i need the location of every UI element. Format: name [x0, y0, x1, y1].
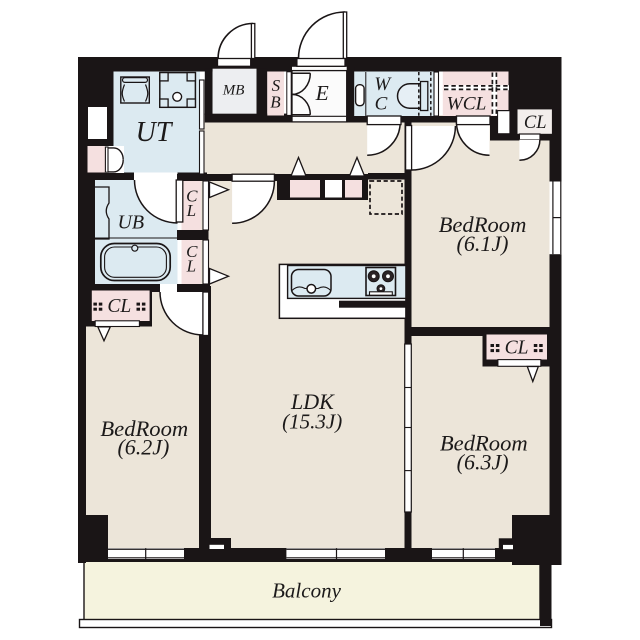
svg-text:(15.3J): (15.3J): [282, 410, 342, 434]
svg-text:MB: MB: [222, 82, 245, 98]
svg-text:UB: UB: [117, 212, 144, 234]
svg-text:CL: CL: [505, 338, 529, 359]
svg-text:UT: UT: [136, 117, 174, 148]
svg-text:(6.3J): (6.3J): [457, 450, 509, 475]
svg-text:Balcony: Balcony: [272, 578, 341, 602]
svg-text:E: E: [315, 81, 329, 105]
svg-text:(6.2J): (6.2J): [117, 435, 169, 460]
svg-text:CL: CL: [524, 113, 547, 133]
svg-text:WCL: WCL: [447, 94, 487, 115]
svg-text:W: W: [374, 74, 392, 95]
svg-text:C: C: [375, 94, 388, 115]
svg-text:(6.1J): (6.1J): [457, 231, 509, 256]
svg-text:CL: CL: [107, 296, 131, 317]
svg-text:B: B: [270, 92, 281, 111]
svg-text:L: L: [186, 201, 196, 220]
svg-text:L: L: [186, 257, 196, 276]
